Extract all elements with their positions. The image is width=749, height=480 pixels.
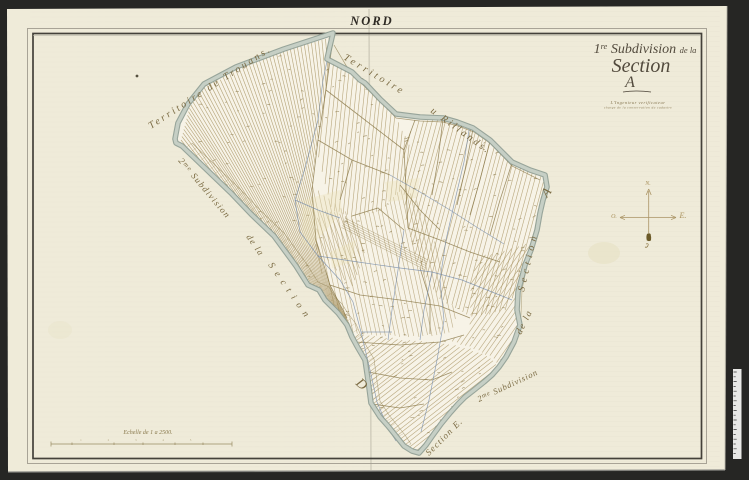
svg-text:1 2 3 4 5: 1 2 3 4 5 (80, 438, 204, 442)
svg-text:A: A (624, 74, 635, 91)
svg-text:L'Ingenieur verificateur: L'Ingenieur verificateur (609, 100, 665, 105)
svg-text:NORD: NORD (349, 14, 393, 28)
svg-text:Echelle de 1 a 2500.: Echelle de 1 a 2500. (122, 430, 172, 436)
svg-text:charge de la conservation du c: charge de la conservation du cadastre (604, 106, 672, 110)
svg-text:E.: E. (679, 211, 687, 220)
svg-text:N.: N. (644, 181, 651, 187)
svg-text:Section: Section (612, 55, 671, 77)
svg-text:O.: O. (611, 214, 617, 220)
